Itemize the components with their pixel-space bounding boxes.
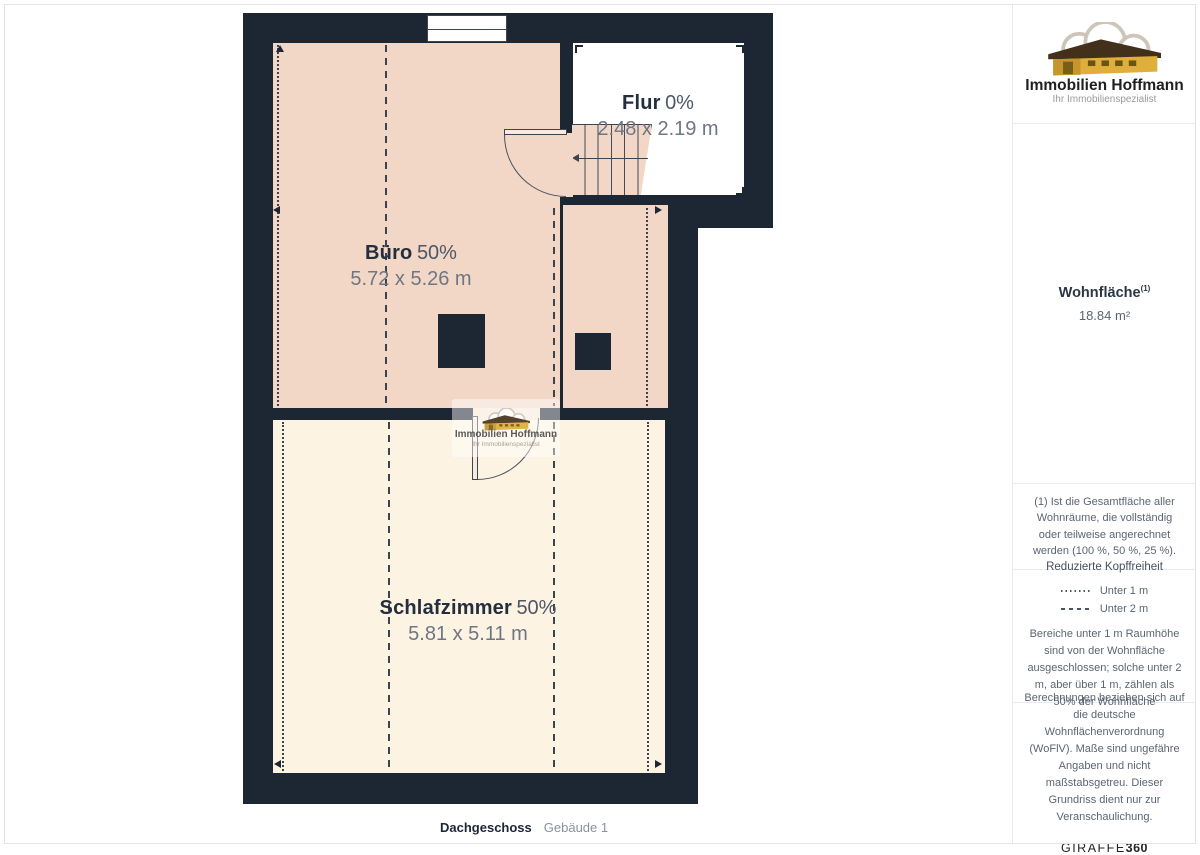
corner-tick-icon xyxy=(736,45,744,53)
room-dimensions: 2.48 x 2.19 m xyxy=(597,118,718,141)
door-leaf-flur xyxy=(504,129,567,135)
corner-arrow-icon xyxy=(276,45,284,52)
chimney-block-1 xyxy=(438,314,485,368)
corner-arrow-icon xyxy=(655,760,662,768)
headroom-dotted-line xyxy=(646,208,648,406)
living-area-label: Wohnfläche(1) xyxy=(1059,284,1151,301)
footnote-marker: (1) xyxy=(1141,284,1151,293)
legend-row-under-2m: Unter 2 m xyxy=(1061,603,1148,615)
sidebar-headroom-section: Reduzierte Kopffreiheit Unter 1 m Unter … xyxy=(1013,570,1196,703)
vendor-name: GIRAFFE xyxy=(1061,841,1126,855)
window-symbol xyxy=(427,15,507,42)
room-label-flur: Flur 0% 2.48 x 2.19 m xyxy=(597,92,718,141)
window-divider xyxy=(428,29,506,30)
room-label-schlafzimmer: Schlafzimmer 50% 5.81 x 5.11 m xyxy=(380,597,557,646)
staircase-direction-line xyxy=(578,158,648,159)
brand-name: Immobilien Hoffmann xyxy=(455,430,557,441)
brand-logo: Immobilien Hoffmann Ihr Immobilienspezia… xyxy=(455,408,557,448)
brand-tagline: Ihr Immobilienspezialist xyxy=(1053,94,1157,105)
room-name: Büro xyxy=(365,242,412,264)
sidebar-area-section: Wohnfläche(1) 18.84 m² xyxy=(1013,124,1196,484)
sidebar: Immobilien Hoffmann Ihr Immobilienspezia… xyxy=(1012,4,1196,843)
room-dimensions: 5.81 x 5.11 m xyxy=(380,623,557,646)
headroom-title: Reduzierte Kopffreiheit xyxy=(1046,561,1163,573)
corner-arrow-icon xyxy=(273,206,280,214)
room-percent: 50% xyxy=(516,597,556,619)
floor-label: Dachgeschoss xyxy=(440,820,532,835)
living-area-value: 18.84 m² xyxy=(1079,308,1130,323)
legend-label: Unter 2 m xyxy=(1100,603,1148,615)
corner-arrow-icon xyxy=(655,206,662,214)
footer: Dachgeschoss Gebäude 1 xyxy=(440,820,608,835)
room-label-buero: Büro 50% 5.72 x 5.26 m xyxy=(350,242,471,291)
headroom-dotted-line xyxy=(647,422,649,771)
sidebar-footnote-section: (1) Ist die Gesamtfläche aller Wohnräume… xyxy=(1013,484,1196,570)
staircase-direction-arrow-icon xyxy=(572,154,579,162)
vendor-suffix: 360 xyxy=(1126,841,1148,855)
legend-dotted-line-icon xyxy=(1061,590,1091,592)
corner-tick-icon xyxy=(575,45,583,53)
chimney-block-2 xyxy=(575,333,611,370)
room-name: Schlafzimmer xyxy=(380,597,512,619)
room-percent: 50% xyxy=(417,242,457,264)
headroom-dotted-line xyxy=(277,45,279,406)
corner-tick-icon xyxy=(736,187,744,195)
room-dimensions: 5.72 x 5.26 m xyxy=(350,268,471,291)
corner-arrow-icon xyxy=(274,760,281,768)
room-name: Flur xyxy=(622,92,661,114)
sidebar-logo-section: Immobilien Hoffmann Ihr Immobilienspezia… xyxy=(1013,4,1196,124)
room-buero xyxy=(273,43,560,408)
brand-logo-house-icon xyxy=(1040,22,1168,84)
legend-dashed-line-icon xyxy=(1061,608,1091,610)
room-percent: 0% xyxy=(665,92,694,114)
room-buero-extension xyxy=(563,205,668,408)
headroom-dashed-line xyxy=(385,45,387,406)
legend-row-under-1m: Unter 1 m xyxy=(1061,585,1148,597)
disclaimer-text: Berechnungen beziehen sich auf die deuts… xyxy=(1024,690,1185,826)
headroom-dotted-line xyxy=(282,422,284,771)
building-label: Gebäude 1 xyxy=(544,820,608,835)
footnote-text: (1) Ist die Gesamtfläche aller Wohnräume… xyxy=(1026,494,1183,560)
legend-label: Unter 1 m xyxy=(1100,585,1148,597)
watermark: Immobilien Hoffmann Ihr Immobilienspezia… xyxy=(452,399,560,457)
vendor-brand: GIRAFFE360 xyxy=(1061,841,1148,855)
brand-logo: Immobilien Hoffmann Ihr Immobilienspezia… xyxy=(1025,22,1183,105)
headroom-dashed-line xyxy=(553,208,555,406)
brand-name: Immobilien Hoffmann xyxy=(1025,78,1183,94)
brand-tagline: Ihr Immobilienspezialist xyxy=(472,441,540,448)
sidebar-disclaimer-section: Berechnungen beziehen sich auf die deuts… xyxy=(1013,703,1196,842)
